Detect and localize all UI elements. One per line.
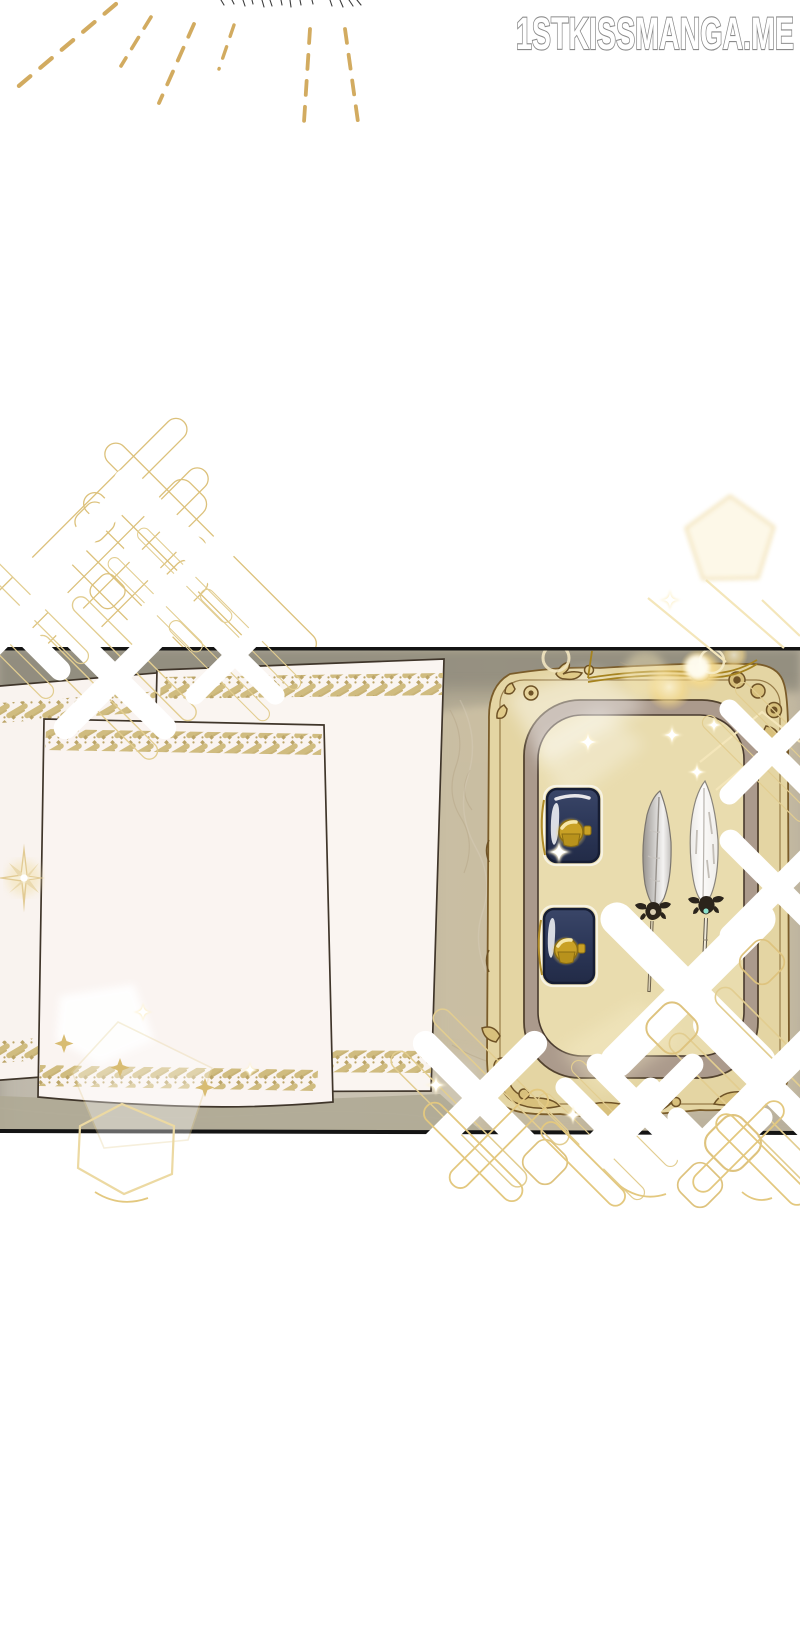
svg-text:1STKISSMANGA.ME: 1STKISSMANGA.ME <box>516 8 794 59</box>
